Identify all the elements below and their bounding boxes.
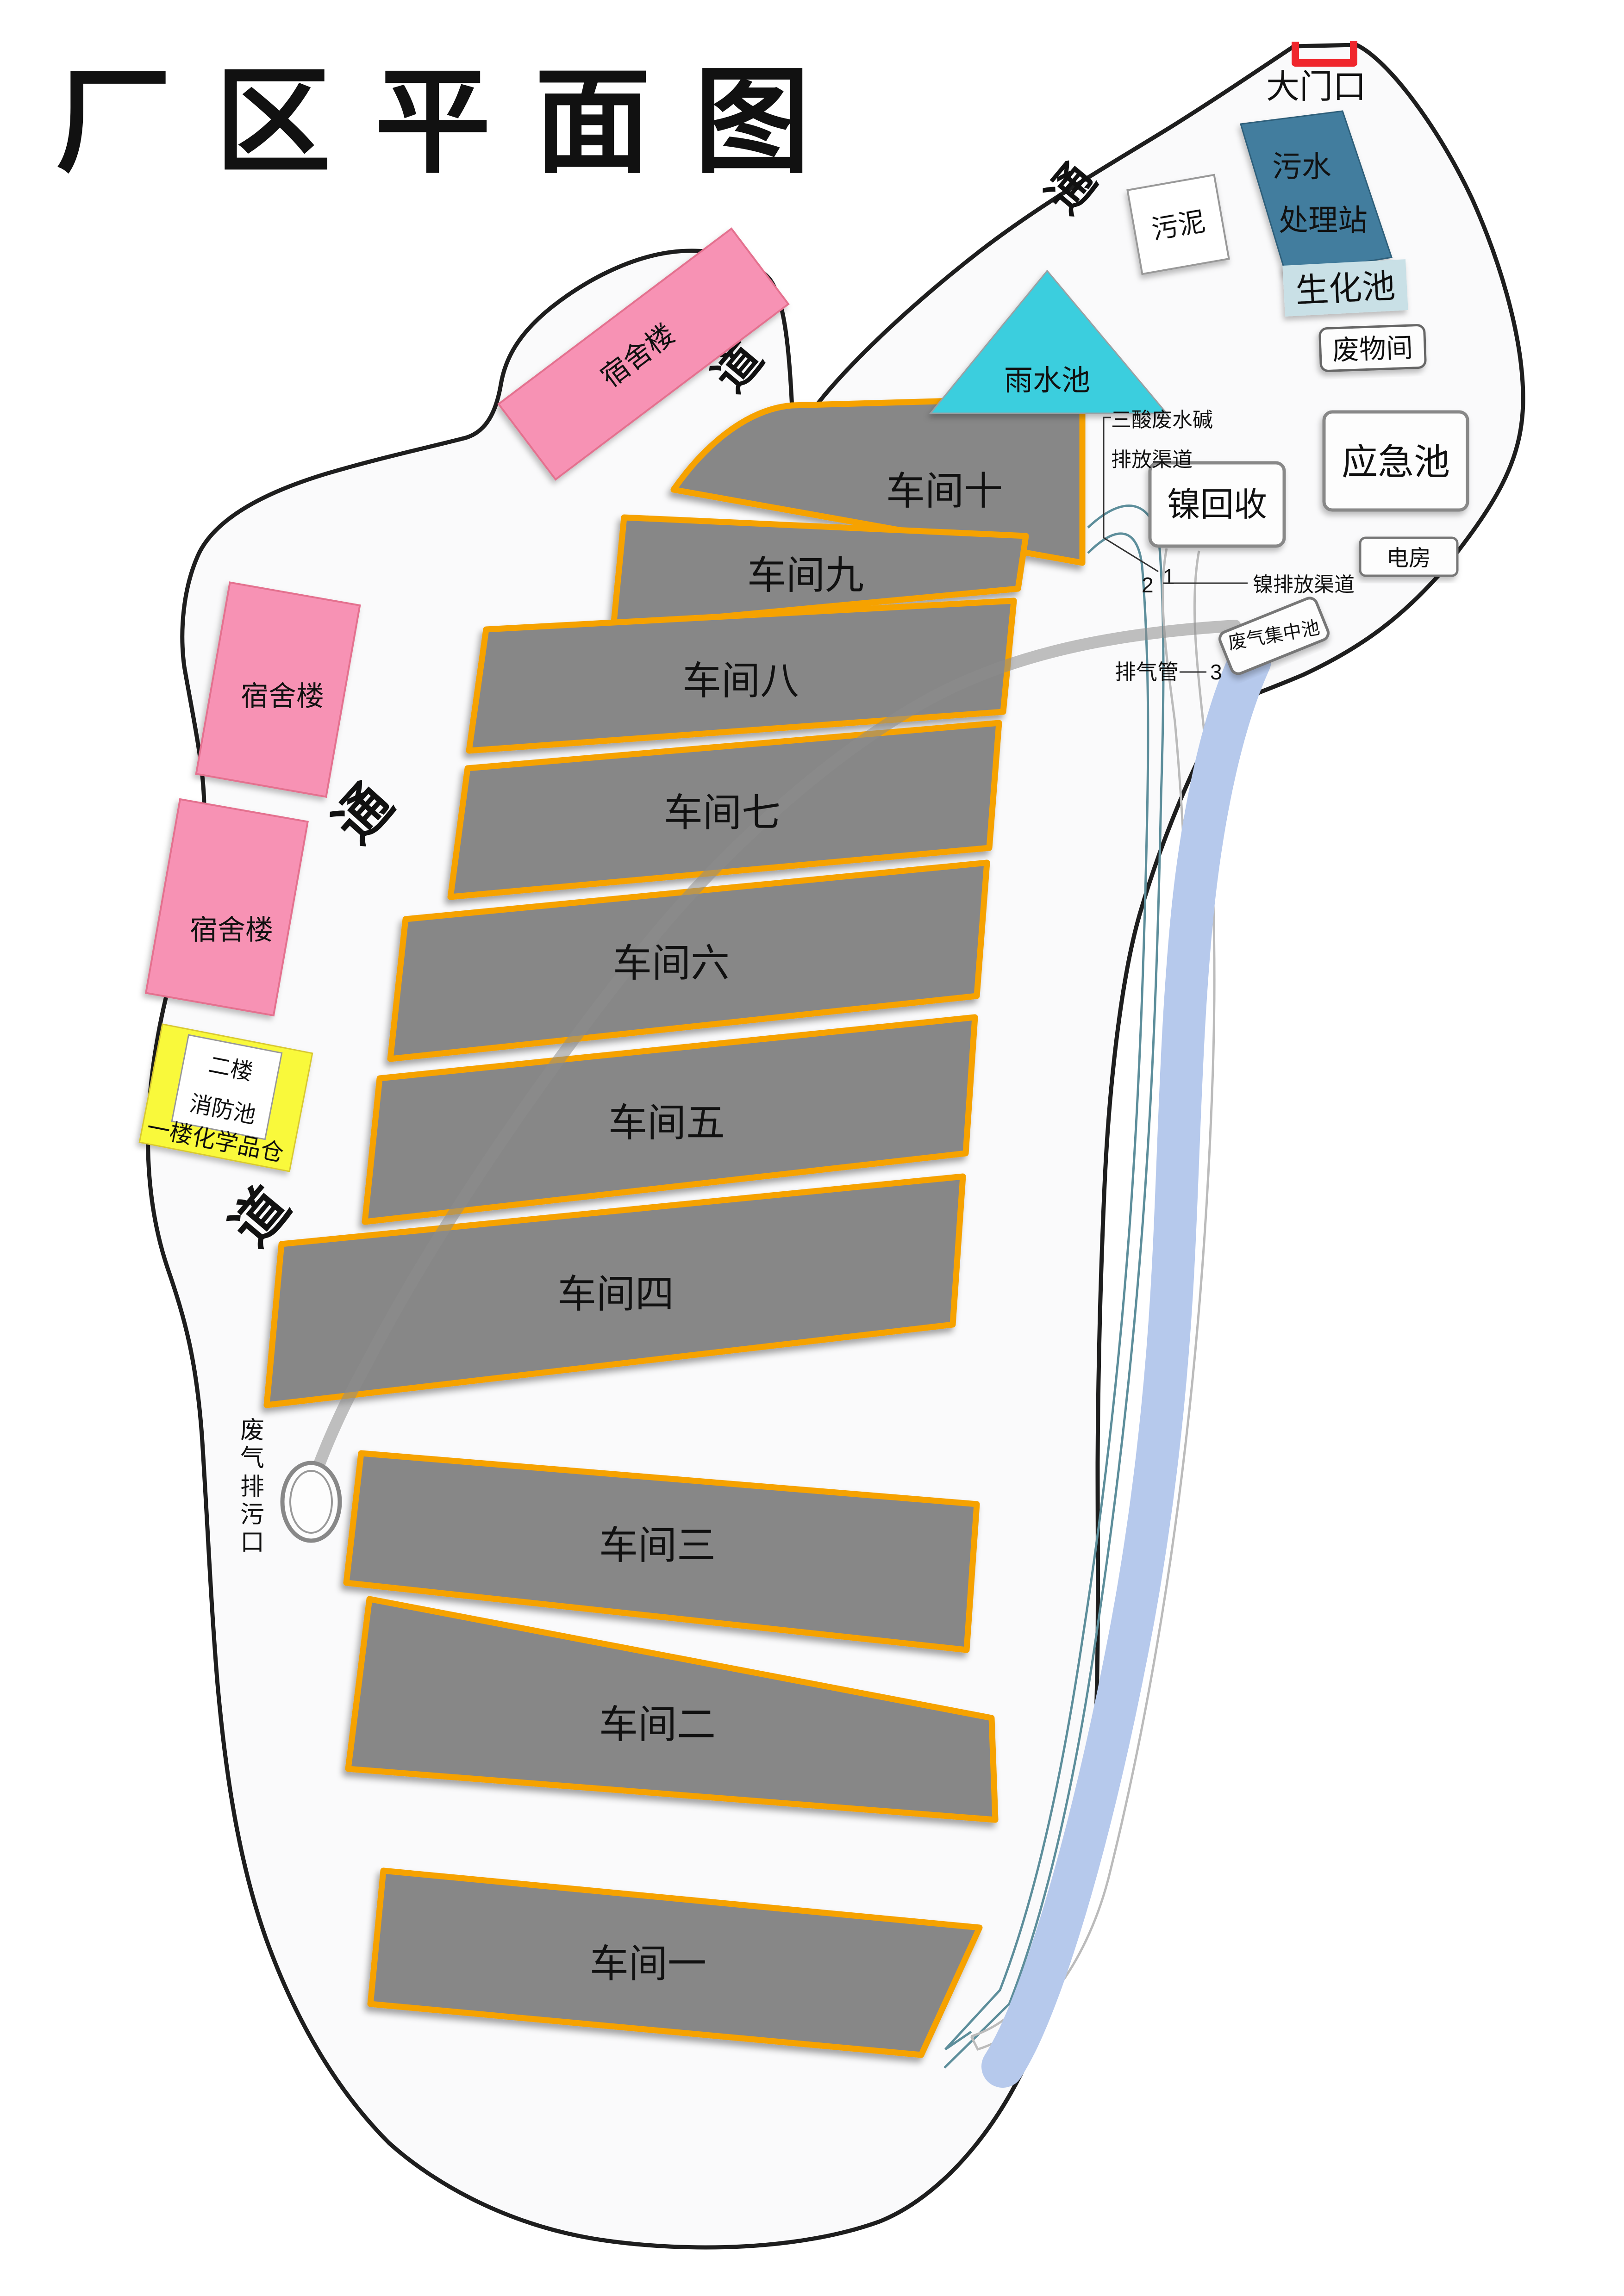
main-gate-label: 大门口 — [1266, 68, 1366, 106]
svg-text:车间八: 车间八 — [682, 659, 799, 703]
svg-text:车间五: 车间五 — [608, 1101, 725, 1145]
factory-site-plan: 厂区平面图 大门口 通 道 通 道 废 气 — [0, 0, 1624, 2296]
svg-text:排: 排 — [240, 1474, 264, 1500]
svg-text:车间九: 车间九 — [747, 554, 864, 597]
svg-text:车间一: 车间一 — [590, 1942, 706, 1985]
svg-text:三酸废水碱: 三酸废水碱 — [1111, 409, 1213, 431]
svg-text:气: 气 — [240, 1445, 264, 1472]
page-title: 厂区平面图 — [56, 57, 854, 187]
sewage-label-1: 污水 — [1272, 150, 1331, 183]
svg-text:车间七: 车间七 — [664, 791, 781, 834]
waste-room-label: 废物间 — [1332, 333, 1413, 366]
svg-text:口: 口 — [240, 1529, 264, 1556]
svg-text:车间四: 车间四 — [557, 1272, 674, 1316]
svg-text:车间二: 车间二 — [599, 1703, 716, 1746]
svg-text:污: 污 — [240, 1501, 264, 1528]
sludge-box: 污泥 — [1127, 175, 1229, 274]
svg-text:废: 废 — [240, 1417, 264, 1444]
svg-text:2: 2 — [1142, 573, 1154, 597]
svg-text:镍排放渠道: 镍排放渠道 — [1253, 573, 1355, 596]
svg-text:3: 3 — [1210, 660, 1222, 684]
waste-room: 废物间 — [1319, 325, 1425, 371]
sewage-label-2: 处理站 — [1279, 204, 1368, 237]
svg-text:车间六: 车间六 — [613, 941, 730, 985]
svg-text:车间三: 车间三 — [599, 1524, 716, 1567]
svg-text:1: 1 — [1163, 565, 1175, 589]
waste-gas-outlet-label: 废 气 排 污 口 — [240, 1417, 264, 1556]
svg-text:排气管: 排气管 — [1115, 660, 1179, 684]
biochemical-pool: 生化池 — [1282, 259, 1408, 317]
svg-text:排放渠道: 排放渠道 — [1111, 448, 1193, 471]
power-room-label: 电房 — [1387, 546, 1431, 571]
dormitory-mid-label: 宿舍楼 — [241, 681, 324, 712]
svg-text:车间十: 车间十 — [886, 469, 1003, 513]
biochemical-pool-label: 生化池 — [1294, 268, 1396, 310]
dormitory-lower-label: 宿舍楼 — [190, 915, 273, 946]
rain-pool-label: 雨水池 — [1004, 365, 1090, 397]
emergency-pool-label: 应急池 — [1342, 442, 1450, 482]
nickel-recovery-label: 镍回收 — [1167, 486, 1267, 523]
waste-gas-outlet — [282, 1463, 340, 1541]
